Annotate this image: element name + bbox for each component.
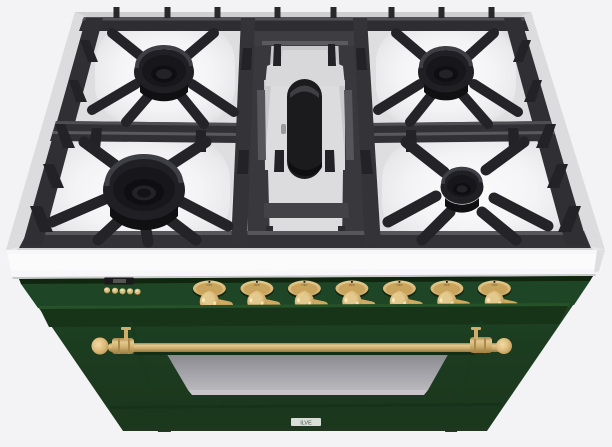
svg-text:ILVE: ILVE [300,420,312,426]
